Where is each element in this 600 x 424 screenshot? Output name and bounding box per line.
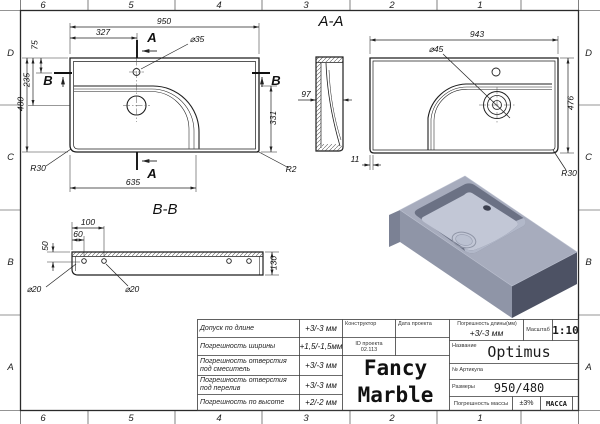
zone-bottom-1: 1	[477, 413, 482, 424]
zone-top-1: 1	[477, 0, 482, 11]
zone-right-a: A	[584, 362, 591, 373]
zone-left-c: C	[7, 152, 14, 163]
dim-plan-right-height: 331	[268, 111, 278, 125]
zone-top-6: 6	[40, 0, 46, 11]
drawing-sheet: 6 5 4 3 2 1 6 5 4 3 2 1 D C B A D C B A	[0, 0, 600, 424]
scale-value: 1:10	[553, 320, 578, 340]
dim-plan-drain-y: 235	[22, 73, 32, 88]
zone-bottom-4: 4	[216, 413, 221, 424]
project-id-value: 02.113	[343, 347, 395, 353]
tolerance-row-value: +3/-3 мм	[300, 356, 342, 375]
dim-aa-height: 476	[566, 96, 576, 110]
mass-tolerance-label: Погрешность массы	[450, 397, 512, 410]
tolerance-row-value: +3/-3 мм	[300, 376, 342, 394]
dim-plan-faucet-x: 327	[96, 27, 110, 37]
article-label: № Артикула	[452, 367, 502, 373]
zone-top-4: 4	[216, 0, 221, 11]
dim-bb-hole1: 60	[73, 229, 83, 239]
dim-bb-mount-hole-left: ⌀20	[27, 284, 42, 294]
name-value: Optimus	[460, 341, 578, 362]
section-b-label-left: B	[43, 73, 52, 88]
dim-plan-depth: 480	[16, 97, 26, 111]
length-tolerance-value: +3/-3 мм	[450, 326, 523, 340]
section-a-label-bottom: A	[146, 166, 156, 181]
tolerance-row-value: +3/-3 мм	[300, 320, 342, 337]
tolerance-row-label: Погрешность по высоте	[200, 395, 297, 410]
dim-plan-basin-width: 635	[126, 177, 140, 187]
tolerance-row-value: +2/-2 мм	[300, 395, 342, 410]
tolerance-row-label: Допуск по длине	[200, 320, 297, 337]
constructor-label: Конструктор	[345, 321, 393, 327]
zone-bottom-5: 5	[128, 413, 134, 424]
zone-top-2: 2	[388, 0, 395, 11]
tolerance-row-label: Погрешность ширины	[200, 338, 297, 355]
section-aa-title: A-A	[317, 13, 343, 30]
dim-plan-faucet-hole: ⌀35	[190, 34, 205, 44]
dim-plan-faucet-y: 75	[30, 40, 40, 50]
dim-aa-wall-offset: 11	[351, 154, 360, 164]
tolerance-row-label: Погрешность отверстия под смеситель	[200, 356, 297, 375]
zone-right-b: B	[585, 257, 592, 268]
section-bb-view: B-B 100	[27, 201, 279, 294]
zone-left-b: B	[7, 257, 14, 268]
zone-right-d: D	[585, 48, 592, 59]
render-3d-view	[389, 176, 577, 318]
dim-bb-height: 130	[269, 256, 279, 270]
scale-label: Масштаб	[524, 320, 552, 340]
date-label: Дата проекта	[398, 321, 448, 327]
zone-right-c: C	[585, 152, 592, 163]
brand-logo-line2: Marble	[342, 382, 449, 409]
section-bb-title: B-B	[152, 201, 177, 218]
tolerance-row-value: +1,5/-1,5мм	[300, 338, 342, 355]
brand-logo: Fancy Marble	[342, 355, 449, 409]
dim-aa-drain-hole: ⌀45	[429, 44, 444, 54]
zone-left-a: A	[6, 362, 13, 373]
dim-plan-width: 950	[157, 16, 171, 26]
dim-plan-corner-br: R2	[286, 164, 297, 174]
dim-bb-hole2: 100	[81, 217, 95, 227]
zone-top-3: 3	[303, 0, 309, 11]
zone-bottom-3: 3	[303, 413, 309, 424]
zone-left-d: D	[7, 48, 14, 59]
dim-bb-mount-hole-right: ⌀20	[125, 284, 140, 294]
section-b-label-right: B	[271, 73, 280, 88]
dim-bb-hole-depth: 50	[40, 241, 50, 251]
tolerance-row-label: Погрешность отверстия под перелив	[200, 376, 297, 394]
zone-bottom-6: 6	[40, 413, 46, 424]
plan-view: 950 327 75 235 480 331 635 R30 R2 ⌀35 A …	[16, 16, 297, 192]
dim-aa-side-width: 97	[301, 89, 311, 99]
section-aa-view: A-A 97	[298, 13, 577, 178]
dim-aa-corner: R30	[561, 168, 577, 178]
section-a-label-top: A	[146, 30, 156, 45]
brand-logo-line1: Fancy	[342, 355, 449, 382]
mass-tolerance-value: ±3%	[513, 397, 540, 410]
dim-plan-corner-bl: R30	[30, 163, 46, 173]
dim-aa-width: 943	[470, 29, 484, 39]
zone-top-5: 5	[128, 0, 134, 11]
sizes-value: 950/480	[460, 380, 578, 395]
mass-label: МАССА	[541, 397, 572, 410]
zone-bottom-2: 2	[388, 413, 395, 424]
